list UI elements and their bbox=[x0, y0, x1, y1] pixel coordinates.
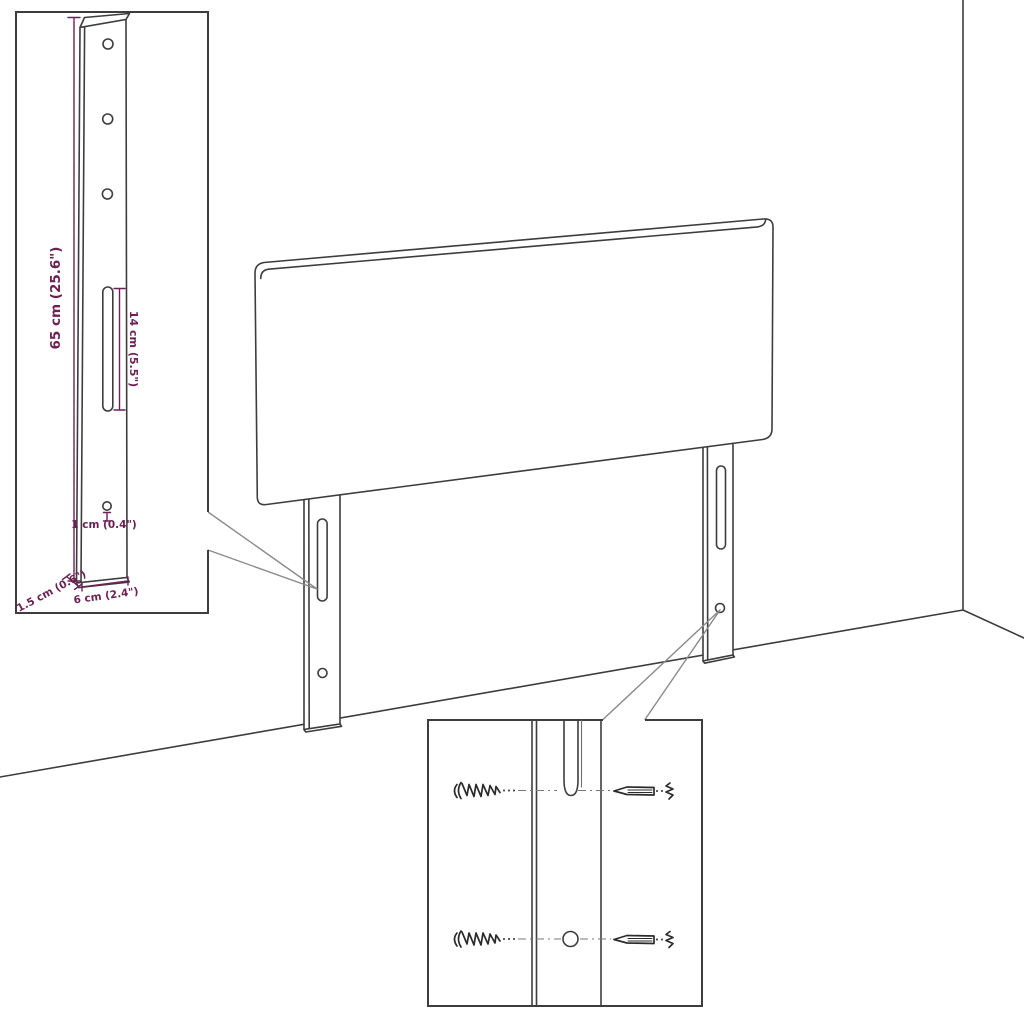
dimension-label-1cm: 1 cm (0.4") bbox=[71, 519, 136, 531]
mounting-detail-inset bbox=[428, 720, 702, 1006]
bracket-drawing bbox=[77, 14, 130, 588]
bracket-detail-inset: 65 cm (25.6") 14 cm (5.5") 1 cm (0.4") 1… bbox=[15, 12, 208, 615]
callout-lines-mounting bbox=[603, 610, 720, 720]
left-leg bbox=[304, 487, 342, 732]
headboard-panel bbox=[255, 219, 773, 505]
dimension-label-14cm: 14 cm (5.5") bbox=[127, 311, 140, 387]
assembly-diagram: 65 cm (25.6") 14 cm (5.5") 1 cm (0.4") 1… bbox=[0, 0, 1024, 1024]
callout-lines-bracket bbox=[208, 512, 317, 589]
right-leg bbox=[703, 439, 734, 663]
dimension-label-65cm: 65 cm (25.6") bbox=[48, 247, 64, 350]
